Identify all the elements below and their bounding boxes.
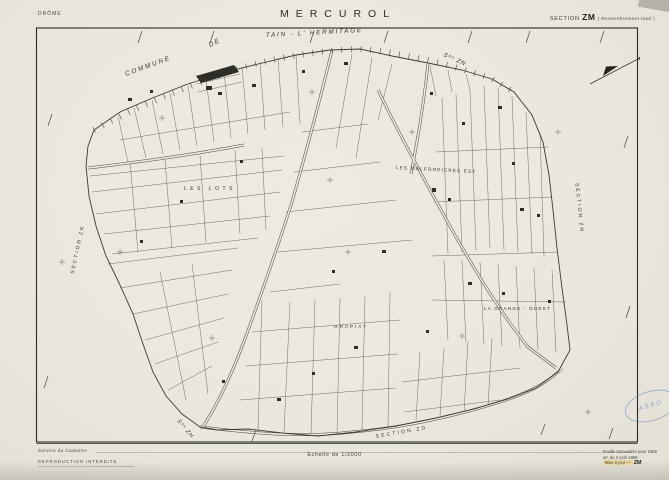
label-malfondieres: LES MALFONDIERES EST xyxy=(396,165,477,174)
grid-crosses xyxy=(59,89,591,415)
frame-ticks xyxy=(44,31,630,441)
notice-underline xyxy=(38,466,134,467)
stamp-text: ASSO xyxy=(638,400,663,413)
label-section-zn: SECTION ZN xyxy=(573,183,584,234)
buildings xyxy=(128,62,551,401)
revision-code: ZM xyxy=(634,460,642,466)
revision-line-1: Feuille renouvelée pour 1969 xyxy=(603,449,657,455)
label-tain-lhermitage: TAIN - L' HERMITAGE xyxy=(266,27,363,39)
revision-block: Feuille renouvelée pour 1969 arr. du 2 a… xyxy=(603,449,657,467)
map-labels: COMMUNE DE TAIN - L' HERMITAGE Sᵒⁿ ZN LE… xyxy=(70,27,585,440)
scale-label: Echelle de 1/2000 xyxy=(0,452,669,458)
map-canvas: COMMUNE DE TAIN - L' HERMITAGE Sᵒⁿ ZN LE… xyxy=(0,0,669,480)
label-grange-ouest: LA GRANGE - OUEST xyxy=(484,306,551,311)
cadastral-map-sheet: DRÔME MERCUROL SECTION ZM ( Remembrement… xyxy=(0,0,669,480)
revision-highlight: Mise à jour — xyxy=(603,460,633,465)
roads xyxy=(88,50,562,435)
parcel-lines xyxy=(90,54,566,435)
label-section-zn-small: Sᵒⁿ ZN xyxy=(442,52,467,67)
label-section-zd: SECTION ZD xyxy=(375,425,428,440)
label-commune: COMMUNE xyxy=(124,55,172,78)
label-de: DE xyxy=(208,37,222,49)
label-grapiat: GRAPIAT xyxy=(334,324,368,329)
section-boundary xyxy=(86,49,570,436)
reproduction-notice: REPRODUCTION INTERDITE xyxy=(38,459,117,464)
label-les-lots: LES LOTS xyxy=(184,186,236,192)
north-arrow-icon xyxy=(590,57,640,84)
label-section-zk: SECTION ZK xyxy=(70,224,86,274)
revision-line-3: Mise à jour — ZM xyxy=(603,460,657,467)
